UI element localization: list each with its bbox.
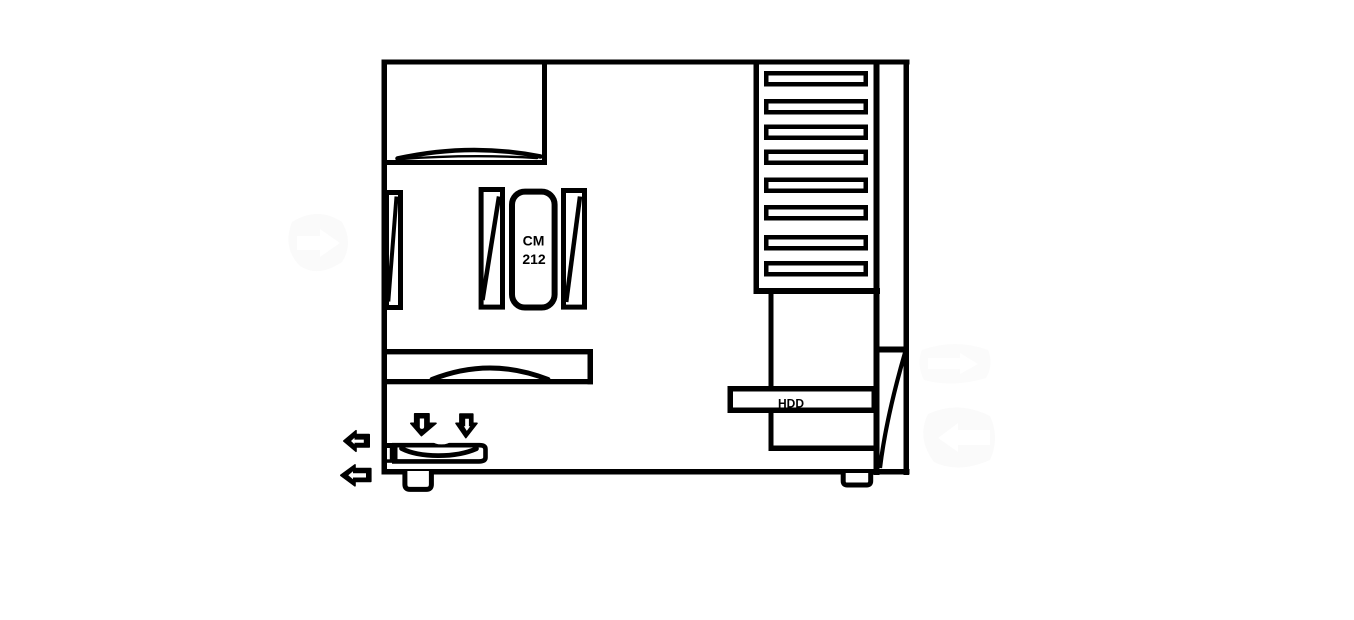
svg-text:HDD: HDD — [778, 397, 804, 411]
svg-text:212: 212 — [522, 251, 546, 267]
svg-text:CM: CM — [523, 233, 545, 249]
